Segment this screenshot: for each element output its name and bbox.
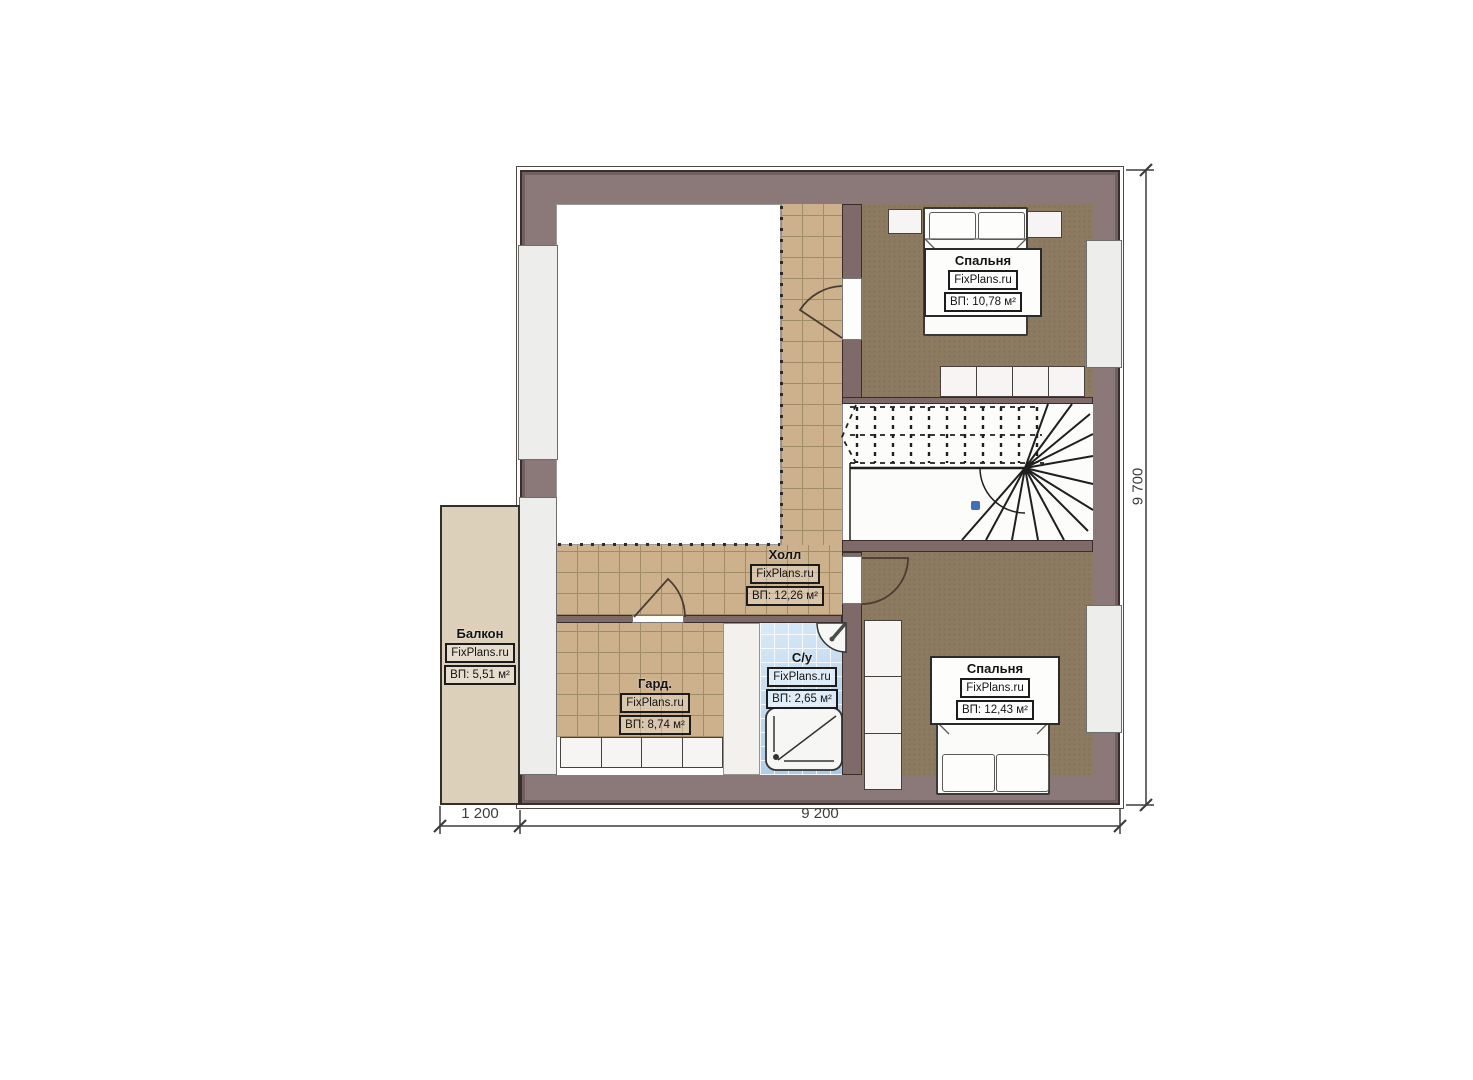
area-tag: ВП: 5,51 м²: [444, 665, 516, 685]
window-bedroom2: [1086, 605, 1122, 733]
pillow: [978, 212, 1025, 240]
dim-house-width: 9 200: [520, 805, 1120, 822]
room-label-bedroom1: Спальня FixPlans.ru ВП: 10,78 м²: [924, 248, 1042, 317]
wall-wardrobe-bathroom: [723, 623, 760, 775]
balcony-glazing: [519, 497, 557, 775]
bed: [936, 714, 1050, 795]
room-label-bathroom: С/у FixPlans.ru ВП: 2,65 м²: [760, 650, 844, 709]
room-name: Холл: [769, 547, 802, 562]
brand-tag: FixPlans.ru: [960, 678, 1030, 698]
door-opening-bedroom2: [842, 556, 862, 604]
room-name: Спальня: [955, 253, 1011, 268]
window-bedroom1: [1086, 240, 1122, 368]
brand-tag: FixPlans.ru: [948, 270, 1018, 290]
area-tag: ВП: 10,78 м²: [944, 292, 1022, 312]
closet: [864, 620, 902, 790]
wall-hall-wardrobe: [556, 615, 842, 623]
room-label-hall: Холл FixPlans.ru ВП: 12,26 м²: [733, 547, 837, 606]
area-tag: ВП: 8,74 м²: [619, 715, 691, 735]
door-opening-bedroom1: [842, 278, 862, 340]
pillow: [996, 754, 1049, 792]
brand-tag: FixPlans.ru: [750, 564, 820, 584]
area-tag: ВП: 2,65 м²: [766, 689, 838, 709]
room-name: Спальня: [967, 661, 1023, 676]
dim-house-depth: 9 700: [1130, 447, 1147, 527]
brand-tag: FixPlans.ru: [767, 667, 837, 687]
nightstand: [1027, 211, 1062, 238]
pillow: [942, 754, 995, 792]
room-name: С/у: [792, 650, 812, 665]
area-tag: ВП: 12,43 м²: [956, 700, 1034, 720]
room-label-bedroom2: Спальня FixPlans.ru ВП: 12,43 м²: [930, 656, 1060, 725]
brand-tag: FixPlans.ru: [445, 643, 515, 663]
room-label-balcony: Балкон FixPlans.ru ВП: 5,51 м²: [440, 626, 520, 685]
area-tag: ВП: 12,26 м²: [746, 586, 824, 606]
room-label-wardrobe: Гард. FixPlans.ru ВП: 8,74 м²: [607, 676, 703, 735]
room-name: Балкон: [457, 626, 504, 641]
wardrobe-cabinets: [560, 737, 723, 768]
room-name: Гард.: [638, 676, 672, 691]
staircase-area: [842, 404, 1093, 540]
pillow: [929, 212, 976, 240]
brand-tag: FixPlans.ru: [620, 693, 690, 713]
window-left: [518, 245, 558, 460]
room-void: [556, 204, 781, 545]
wall-stairs-bedroom2: [842, 540, 1093, 552]
dresser: [940, 366, 1085, 397]
wall-bedroom1-stairs: [842, 397, 1093, 404]
dim-balcony-width: 1 200: [440, 805, 520, 822]
nightstand: [888, 209, 922, 234]
door-opening-wardrobe: [632, 615, 684, 623]
